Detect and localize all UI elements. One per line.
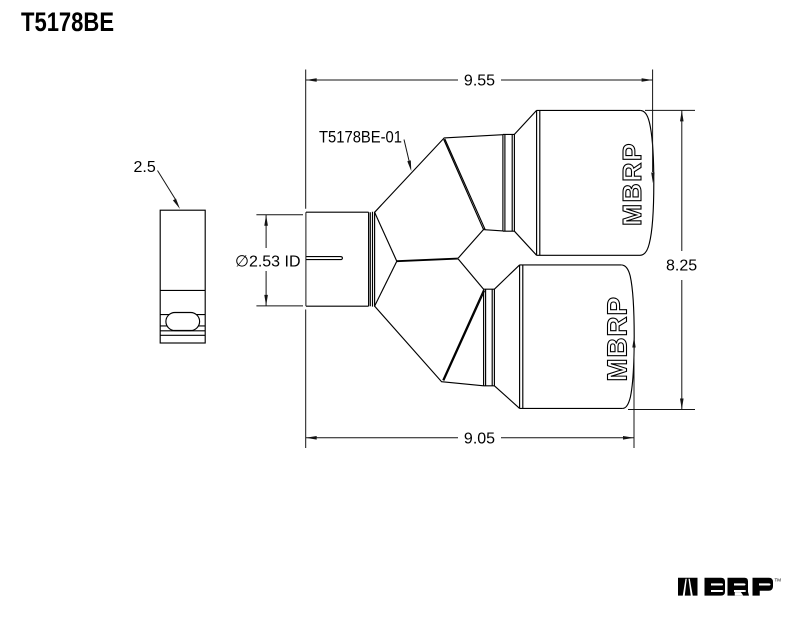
svg-text:2.5: 2.5 [134, 159, 156, 176]
svg-text:8.25: 8.25 [666, 258, 697, 275]
svg-text:MBRP: MBRP [602, 296, 633, 382]
svg-text:∅2.53 ID: ∅2.53 ID [235, 253, 301, 270]
svg-text:9.05: 9.05 [464, 430, 495, 447]
svg-text:T5178BE-01: T5178BE-01 [319, 128, 402, 147]
svg-text:T5178BE: T5178BE [21, 7, 114, 37]
svg-text:MBRP: MBRP [617, 142, 647, 226]
svg-text:TM: TM [775, 578, 782, 583]
svg-text:9.55: 9.55 [464, 73, 495, 90]
